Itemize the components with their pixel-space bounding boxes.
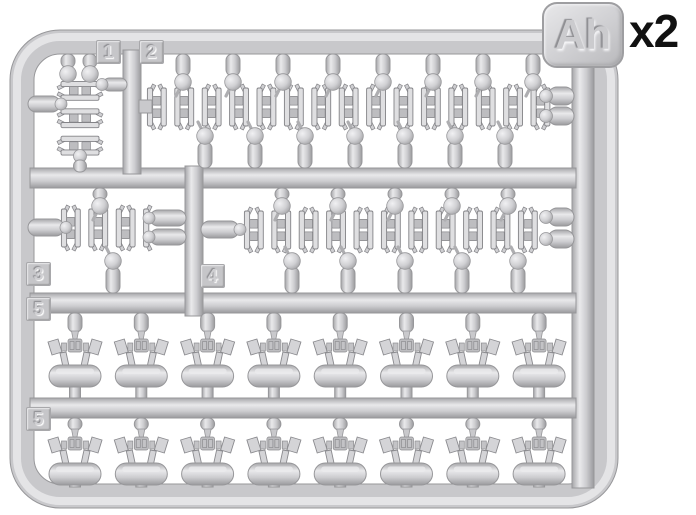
- vertical-rail-1: [123, 50, 141, 174]
- divider-rail-2: [30, 293, 576, 313]
- vertical-rail-2: [185, 166, 203, 316]
- part-label-3: 3: [26, 262, 51, 286]
- part-label-4: 4: [200, 264, 225, 288]
- part-label-5b: 5: [26, 407, 51, 431]
- quantity-multiplier: x2: [629, 4, 678, 58]
- sprue-code-tab: Ah: [542, 2, 624, 68]
- sprue-illustration: [0, 0, 696, 515]
- part-label-5a: 5: [26, 297, 51, 321]
- sprue-diagram-canvas: 1 2 3 4 5 5 Ah x2: [0, 0, 696, 515]
- right-inner-rail: [572, 50, 594, 488]
- divider-rail-1: [30, 168, 576, 188]
- part-label-1: 1: [96, 40, 121, 64]
- sprue-code: Ah: [555, 11, 611, 59]
- divider-rail-3: [30, 398, 576, 418]
- part-label-2: 2: [139, 40, 164, 64]
